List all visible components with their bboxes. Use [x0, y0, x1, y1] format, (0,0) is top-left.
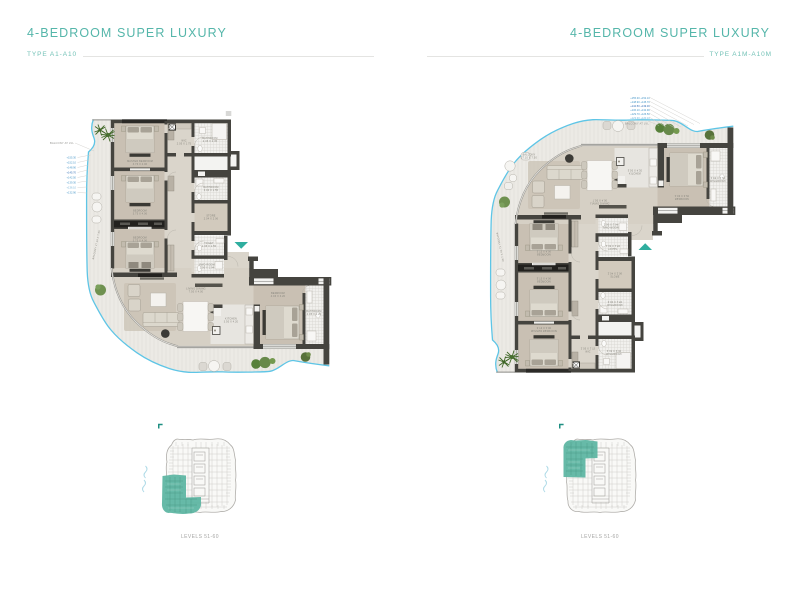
- svg-text:BALCONY AT LVL: BALCONY AT LVL: [50, 141, 74, 145]
- svg-text:+123.30 +120.10: +123.30 +120.10: [630, 116, 650, 120]
- svg-text:+148.90 +145.70: +148.90 +145.70: [630, 100, 650, 104]
- svg-text:+155.30: +155.30: [67, 156, 77, 160]
- svg-text:+142.50: +142.50: [67, 176, 77, 180]
- svg-text:+136.10: +136.10: [67, 186, 77, 190]
- svg-text:+129.70 +126.50: +129.70 +126.50: [630, 112, 650, 116]
- svg-text:+155.30 +152.10: +155.30 +152.10: [630, 96, 650, 100]
- svg-text:+148.90: +148.90: [67, 166, 77, 170]
- svg-text:BALCONY AT LVL: BALCONY AT LVL: [625, 122, 649, 126]
- svg-text:27.10 X 7.50: 27.10 X 7.50: [521, 157, 537, 160]
- svg-text:+152.10: +152.10: [67, 161, 77, 165]
- svg-text:+139.30: +139.30: [67, 181, 77, 185]
- svg-text:+145.70: +145.70: [67, 171, 77, 175]
- svg-text:+136.10 +132.90: +136.10 +132.90: [630, 108, 650, 112]
- svg-text:+132.90: +132.90: [67, 191, 77, 195]
- svg-text:+142.50 +139.30: +142.50 +139.30: [630, 104, 650, 108]
